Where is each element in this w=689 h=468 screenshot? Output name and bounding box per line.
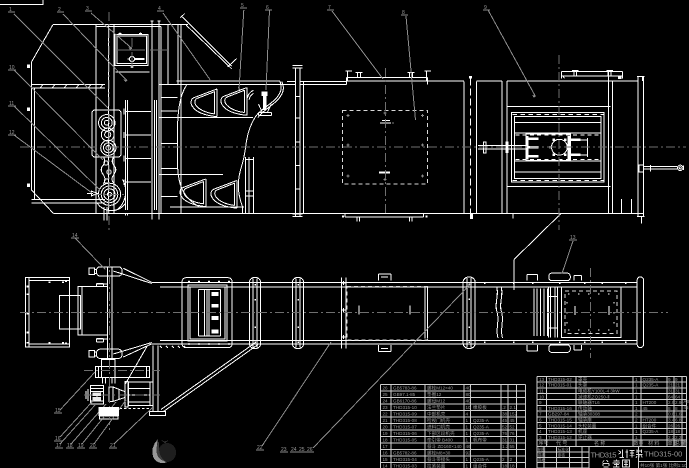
svg-text:A3: A3 <box>684 399 689 404</box>
svg-text:THD315-00: THD315-00 <box>644 450 682 459</box>
svg-text:THD315: THD315 <box>591 450 617 459</box>
svg-text:共10张 第1张 比例1:10: 共10张 第1张 比例1:10 <box>640 462 687 468</box>
svg-text:描校: 描校 <box>538 458 546 463</box>
svg-text:45: 45 <box>684 405 689 410</box>
